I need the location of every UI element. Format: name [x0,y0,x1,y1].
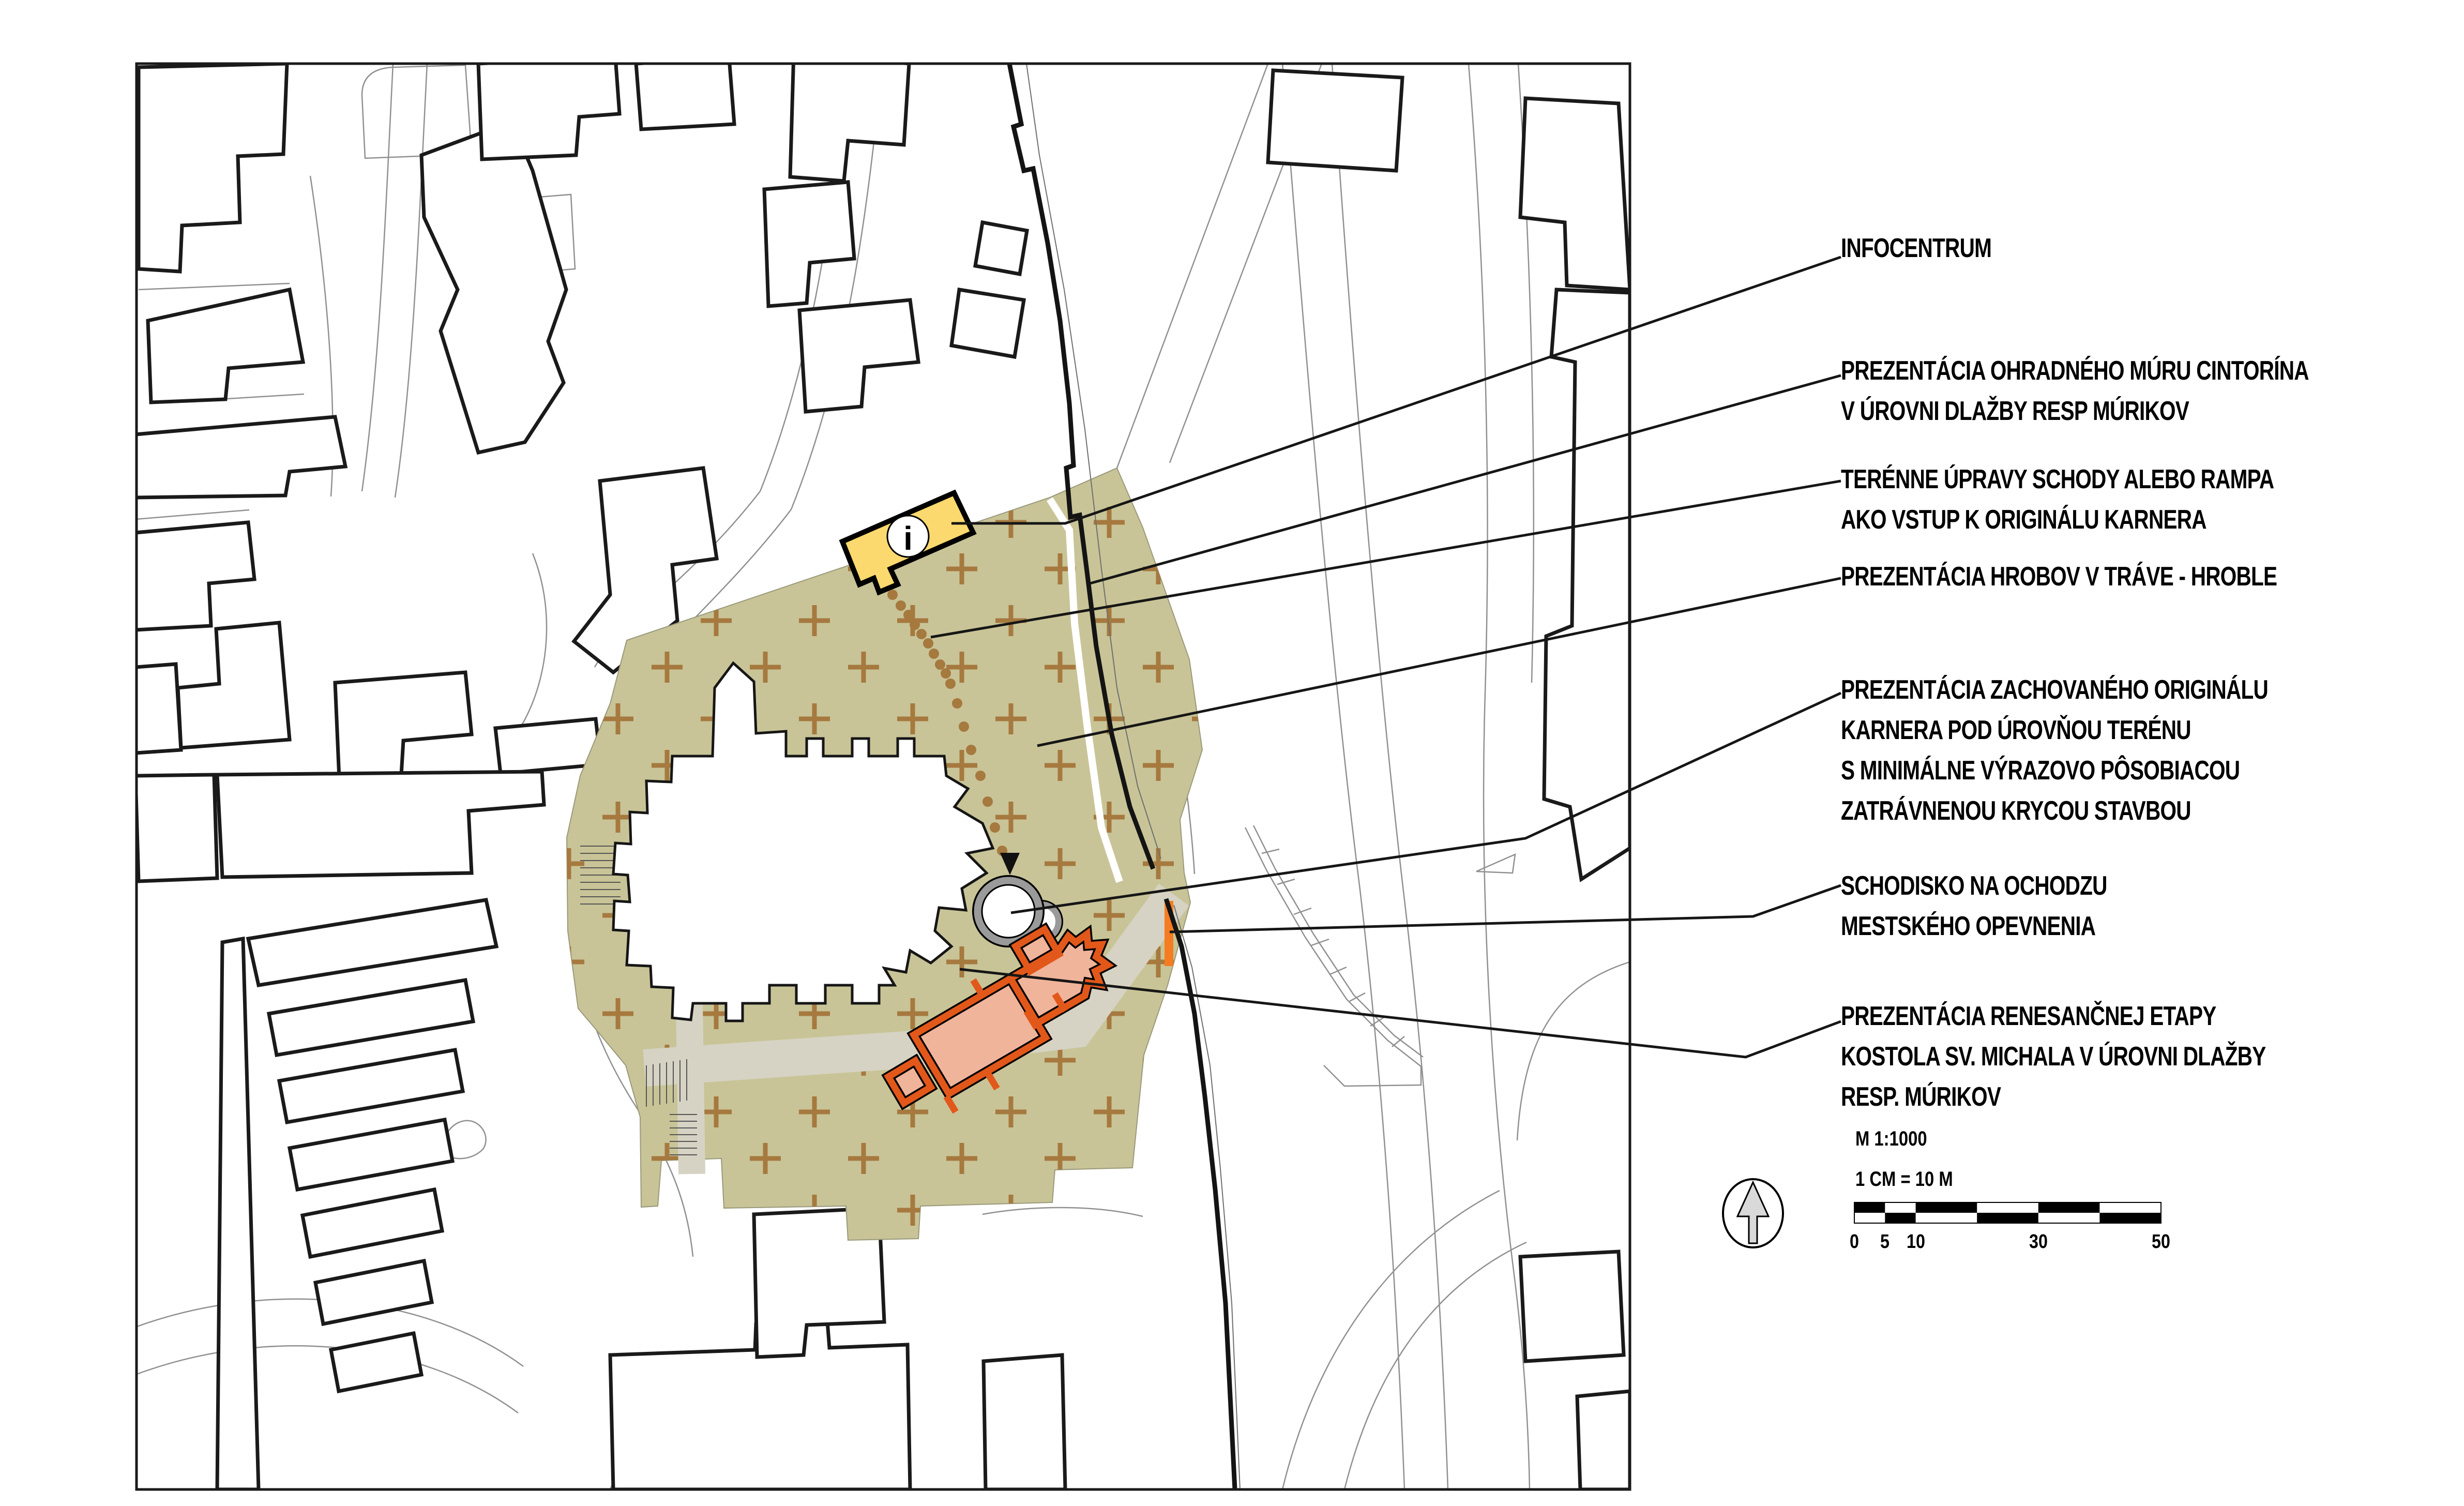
annotation-line: PREZENTÁCIA ZACHOVANÉHO ORIGINÁLU [1841,670,2268,710]
annotation-line: KARNERA POD ÚROVŇOU TERÉNU [1841,710,2268,750]
annotation-line: SCHODISKO NA OCHODZU [1841,866,2107,906]
scale-tick-10: 10 [1907,1231,1925,1253]
annotation-line: KOSTOLA SV. MICHALA V ÚROVNI DLAŽBY [1841,1036,2266,1077]
annotation-line: AKO VSTUP K ORIGINÁLU KARNERA [1841,500,2274,540]
annotation-line: PREZENTÁCIA HROBOV V TRÁVE - HROBLE [1841,556,2277,597]
annotation-line: INFOCENTRUM [1841,228,1991,268]
annotation-line: ZATRÁVNENOU KRYCOU STAVBOU [1841,791,2268,831]
annotation-karner: PREZENTÁCIA ZACHOVANÉHO ORIGINÁLU KARNER… [1841,670,2268,831]
scale-tick-0: 0 [1850,1231,1859,1253]
scale-tick-50: 50 [2152,1231,2170,1253]
scale-bar [1854,1202,2161,1223]
site-plan-page: { "annotations": [ {"id": "infocentrum",… [0,0,2464,1506]
annotation-infocentrum: INFOCENTRUM [1841,228,1991,268]
annotation-hroble: PREZENTÁCIA HROBOV V TRÁVE - HROBLE [1841,556,2277,597]
annotation-line: V ÚROVNI DLAŽBY RESP MÚRIKOV [1841,391,2309,431]
scale-tick-5: 5 [1880,1231,1889,1253]
annotation-line: S MINIMÁLNE VÝRAZOVO PÔSOBIACOU [1841,750,2268,791]
scale-ratio: M 1:1000 [1855,1127,1927,1151]
annotation-line: TERÉNNE ÚPRAVY SCHODY ALEBO RAMPA [1841,459,2274,500]
annotation-line: PREZENTÁCIA RENESANČNEJ ETAPY [1841,996,2266,1036]
annotation-ohradny-mur: PREZENTÁCIA OHRADNÉHO MÚRU CINTORÍNA V Ú… [1841,351,2309,431]
annotation-renesancna-etapa: PREZENTÁCIA RENESANČNEJ ETAPY KOSTOLA SV… [1841,996,2266,1117]
annotation-line: PREZENTÁCIA OHRADNÉHO MÚRU CINTORÍNA [1841,351,2309,391]
north-arrow [1723,1179,1783,1247]
annotation-line: RESP. MÚRIKOV [1841,1077,2266,1117]
info-icon: i [903,520,913,557]
scale-equivalence: 1 CM = 10 M [1855,1168,1953,1191]
scale-tick-30: 30 [2029,1231,2048,1253]
annotation-schodisko: SCHODISKO NA OCHODZU MESTSKÉHO OPEVNENIA [1841,866,2107,946]
annotation-terenne-upravy: TERÉNNE ÚPRAVY SCHODY ALEBO RAMPA AKO VS… [1841,459,2274,540]
annotation-line: MESTSKÉHO OPEVNENIA [1841,906,2107,946]
